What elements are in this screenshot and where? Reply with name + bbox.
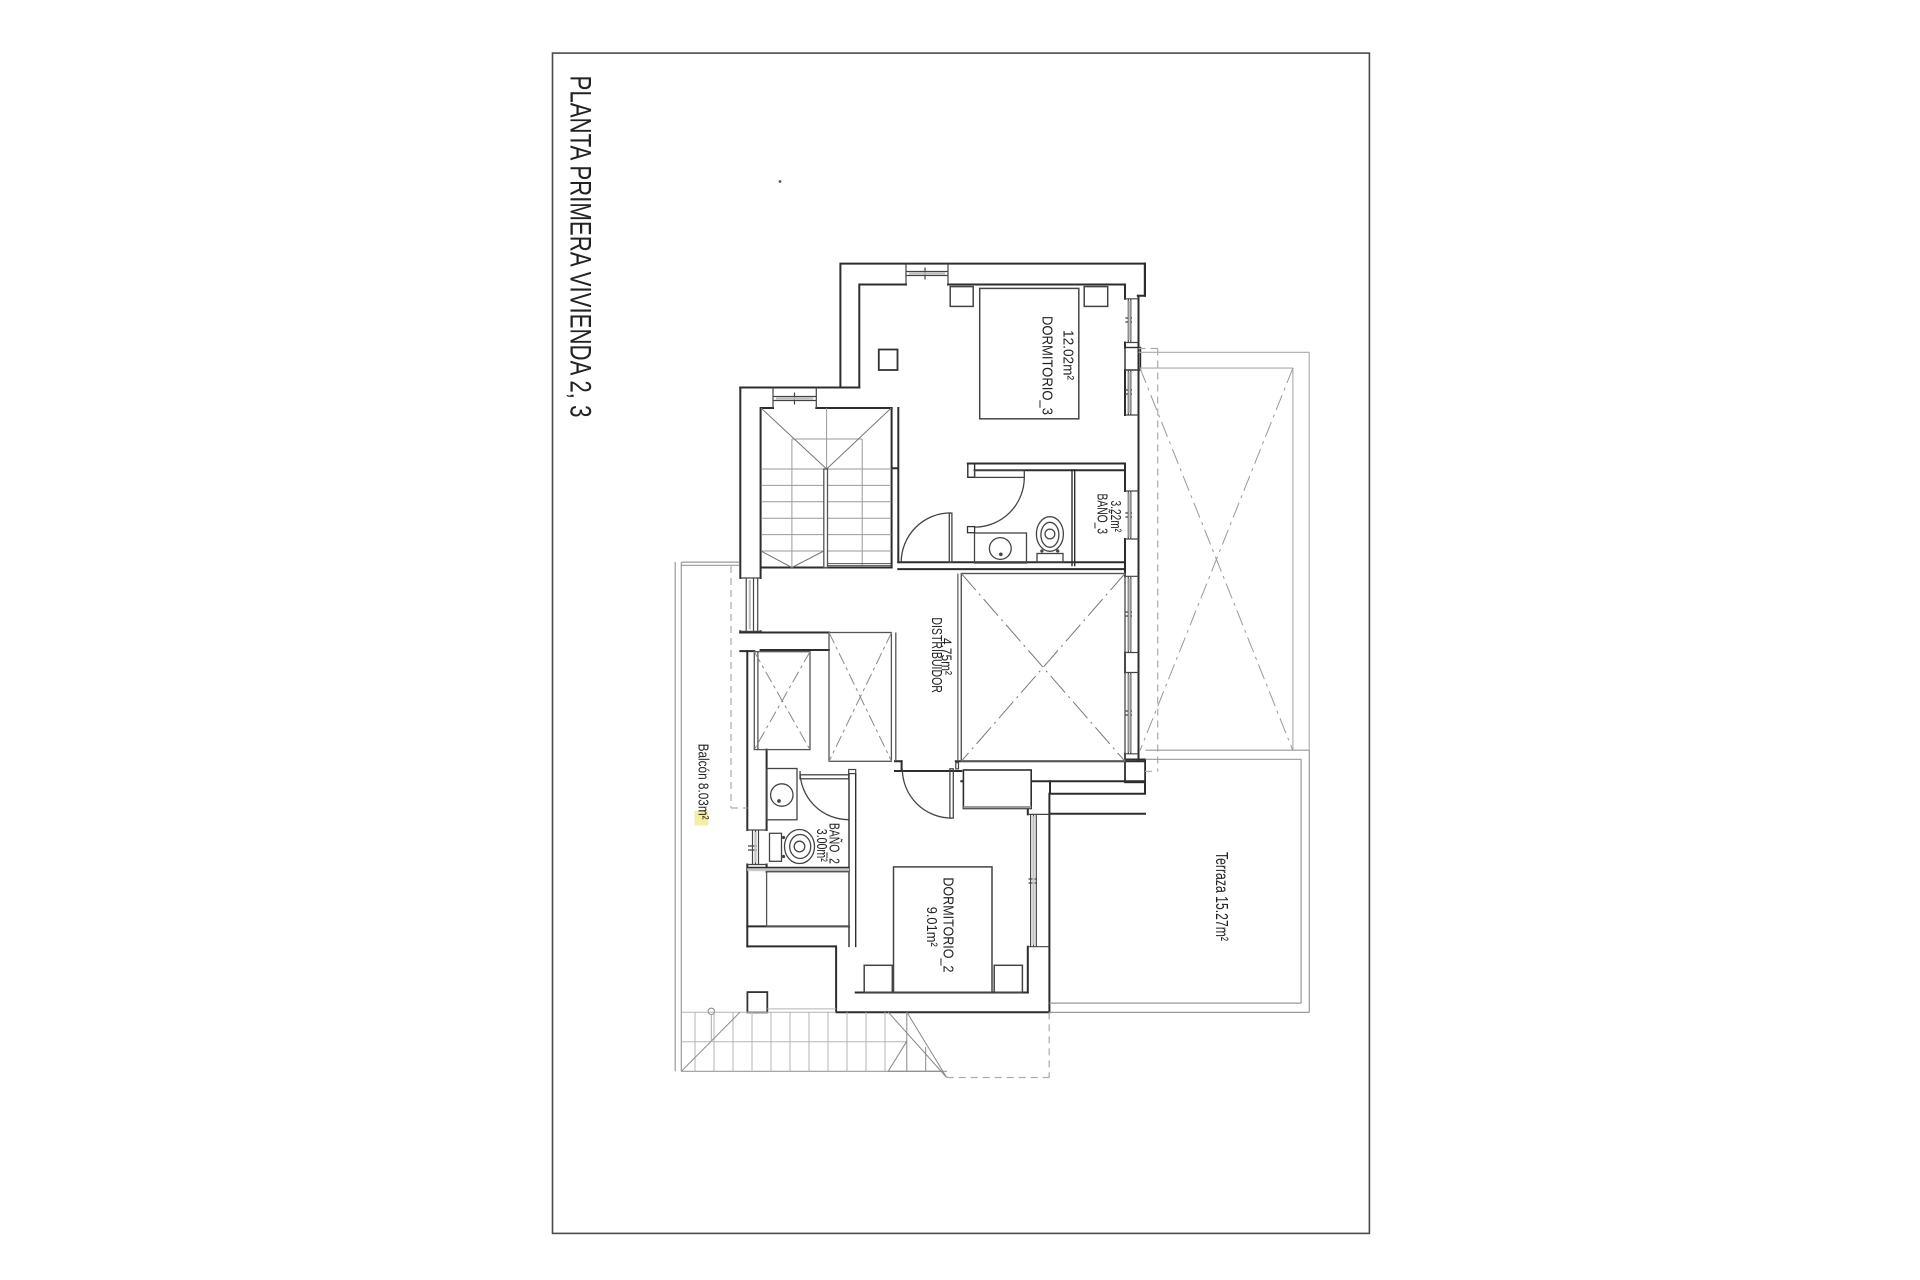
svg-text:PLANTA PRIMERA VIVIENDA 2, 3: PLANTA PRIMERA VIVIENDA 2, 3 (564, 76, 597, 418)
svg-text:Terraza 15.27m²: Terraza 15.27m² (1212, 852, 1232, 941)
svg-text:3.00m²: 3.00m² (813, 829, 830, 862)
svg-text:Balcón 8.03m²: Balcón 8.03m² (695, 744, 712, 820)
svg-text:DORMITORIO_3: DORMITORIO_3 (1039, 316, 1056, 415)
svg-text:DORMITORIO_2: DORMITORIO_2 (940, 877, 957, 972)
svg-text:12.02m²: 12.02m² (1060, 330, 1077, 380)
svg-text:4.75m²: 4.75m² (938, 638, 955, 675)
svg-text:9.01m²: 9.01m² (923, 907, 940, 947)
svg-text:3.22m²: 3.22m² (1107, 501, 1124, 533)
